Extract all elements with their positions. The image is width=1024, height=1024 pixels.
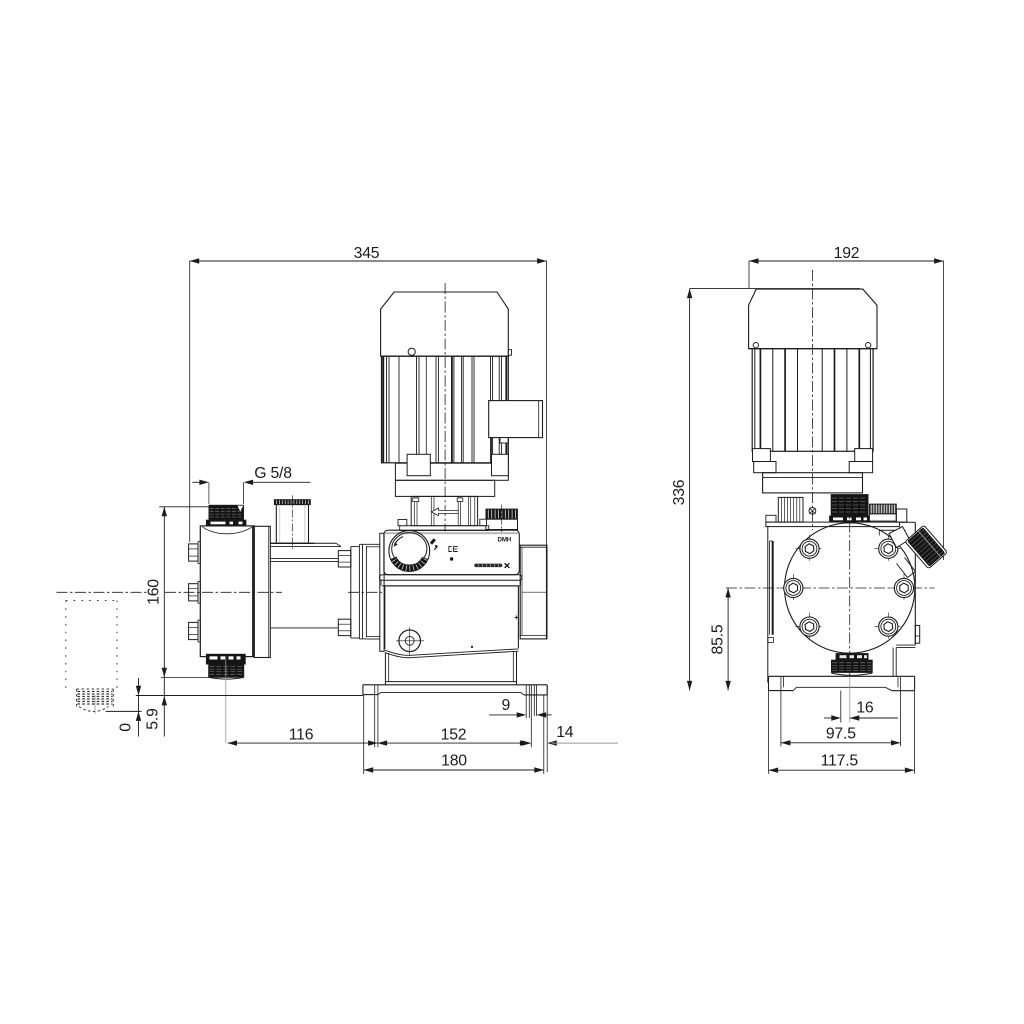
svg-text:DMH: DMH	[498, 536, 512, 543]
svg-text:0: 0	[118, 723, 135, 732]
svg-text:14: 14	[556, 724, 574, 741]
svg-text:336: 336	[671, 479, 688, 505]
svg-text:5.9: 5.9	[145, 708, 162, 730]
svg-text:152: 152	[441, 726, 467, 743]
svg-text:97.5: 97.5	[826, 725, 856, 742]
svg-text:9: 9	[502, 697, 511, 714]
svg-text:116: 116	[289, 726, 314, 743]
svg-text:180: 180	[441, 752, 467, 769]
svg-text:192: 192	[834, 245, 860, 262]
svg-text:160: 160	[146, 579, 163, 605]
svg-text:G 5/8: G 5/8	[254, 465, 292, 482]
svg-text:85.5: 85.5	[710, 624, 727, 654]
svg-text:16: 16	[856, 700, 874, 717]
svg-text:345: 345	[354, 245, 380, 262]
svg-text:117.5: 117.5	[821, 753, 859, 770]
